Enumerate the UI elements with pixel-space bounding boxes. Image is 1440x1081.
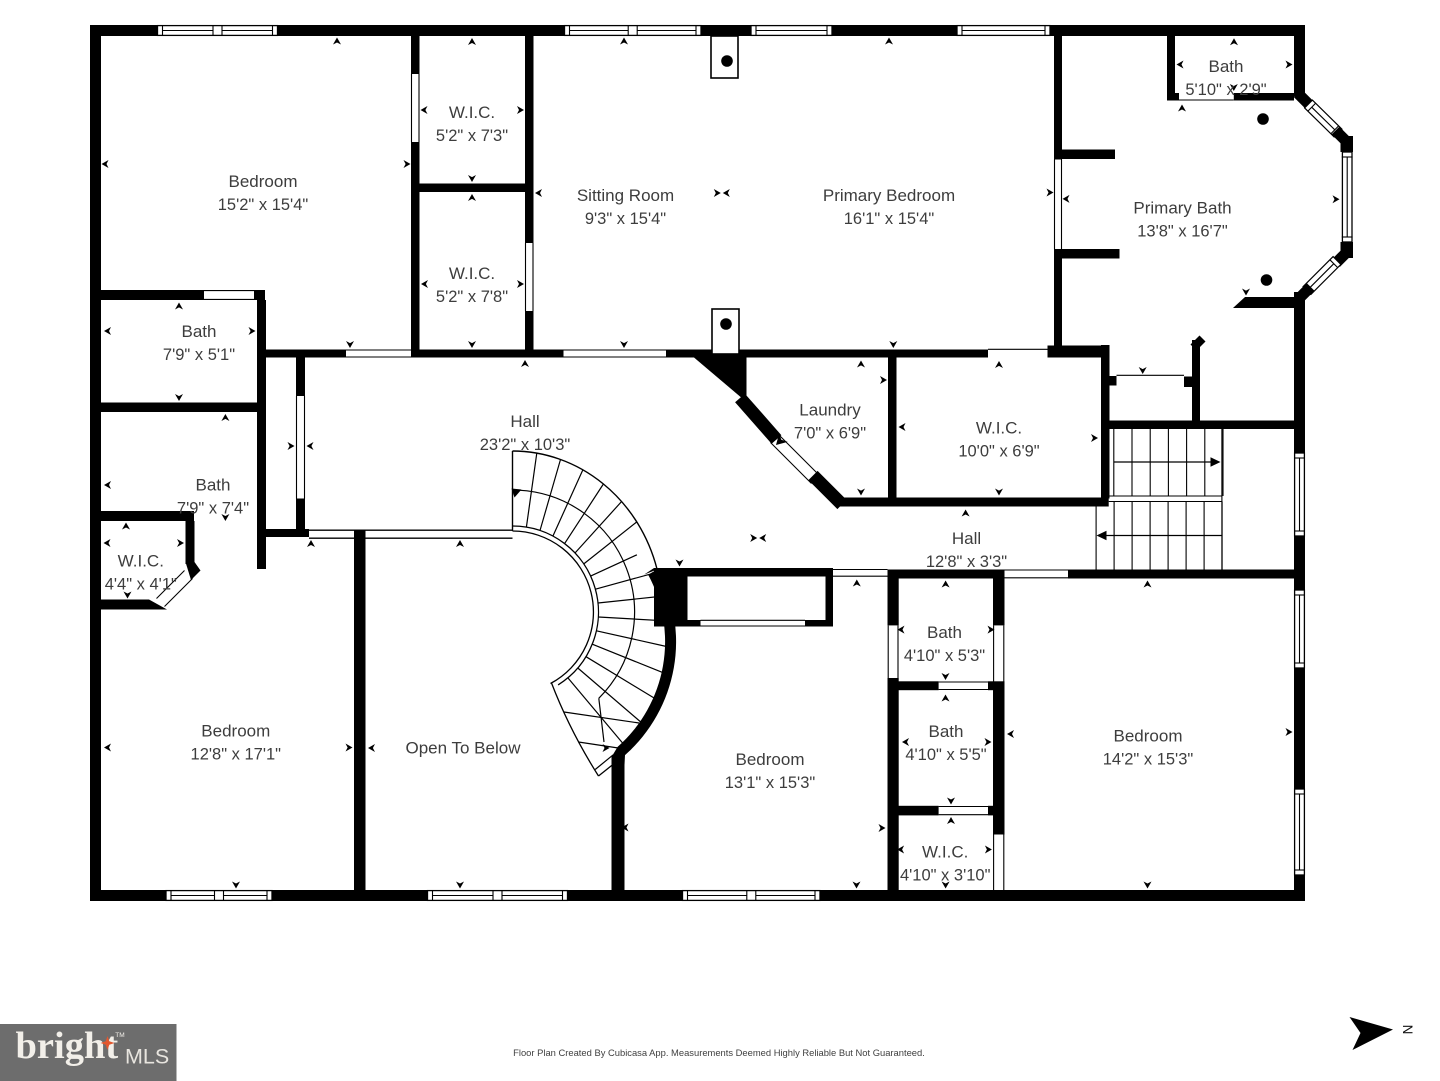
svg-text:Bedroom: Bedroom [736,750,805,769]
svg-text:W.I.C.: W.I.C. [976,419,1022,438]
svg-text:4'4" x 4'1": 4'4" x 4'1" [105,576,177,594]
svg-text:Bedroom: Bedroom [201,722,270,741]
svg-text:Hall: Hall [952,529,981,548]
svg-text:7'9" x 5'1": 7'9" x 5'1" [163,346,235,364]
svg-text:W.I.C.: W.I.C. [449,103,495,122]
svg-text:W.I.C.: W.I.C. [449,264,495,283]
svg-text:5'10" x 2'9": 5'10" x 2'9" [1185,81,1266,99]
svg-text:12'8" x 3'3": 12'8" x 3'3" [926,553,1007,571]
svg-text:15'2" x 15'4": 15'2" x 15'4" [218,196,309,214]
svg-text:Bath: Bath [196,476,231,495]
svg-text:Bedroom: Bedroom [229,172,298,191]
svg-text:9'3" x 15'4": 9'3" x 15'4" [585,210,666,228]
svg-text:14'2" x 15'3": 14'2" x 15'3" [1103,751,1194,769]
svg-text:W.I.C.: W.I.C. [922,843,968,862]
svg-text:5'2" x 7'3": 5'2" x 7'3" [436,127,508,145]
svg-text:Floor Plan Created By Cubicasa: Floor Plan Created By Cubicasa App. Meas… [513,1047,925,1058]
svg-text:7'9" x 7'4": 7'9" x 7'4" [177,500,249,518]
svg-text:Primary Bath: Primary Bath [1133,199,1231,218]
svg-text:Primary Bedroom: Primary Bedroom [823,186,955,205]
svg-text:4'10" x 5'5": 4'10" x 5'5" [905,746,986,764]
svg-text:10'0" x 6'9": 10'0" x 6'9" [958,443,1039,461]
svg-text:N: N [1400,1025,1415,1035]
svg-text:5'2" x 7'8": 5'2" x 7'8" [436,288,508,306]
svg-text:Hall: Hall [510,412,539,431]
svg-text:23'2" x 10'3": 23'2" x 10'3" [480,436,571,454]
svg-text:4'10" x 3'10": 4'10" x 3'10" [900,867,991,885]
svg-text:Bedroom: Bedroom [1114,727,1183,746]
svg-text:W.I.C.: W.I.C. [118,552,164,571]
svg-text:13'8" x 16'7": 13'8" x 16'7" [1137,223,1228,241]
svg-text:Open To Below: Open To Below [406,739,522,758]
svg-text:Bath: Bath [929,722,964,741]
svg-text:Sitting Room: Sitting Room [577,186,674,205]
svg-text:TM: TM [115,1032,124,1039]
svg-text:Bath: Bath [1209,57,1244,76]
svg-text:bright: bright [16,1025,119,1067]
svg-text:13'1" x 15'3": 13'1" x 15'3" [725,774,816,792]
svg-text:Bath: Bath [182,322,217,341]
svg-text:4'10" x 5'3": 4'10" x 5'3" [904,647,985,665]
svg-text:16'1" x 15'4": 16'1" x 15'4" [844,210,935,228]
svg-text:MLS: MLS [125,1045,169,1069]
svg-text:Bath: Bath [927,623,962,642]
svg-text:12'8" x 17'1": 12'8" x 17'1" [191,746,282,764]
svg-text:7'0" x 6'9": 7'0" x 6'9" [794,425,866,443]
svg-text:Laundry: Laundry [799,401,861,420]
